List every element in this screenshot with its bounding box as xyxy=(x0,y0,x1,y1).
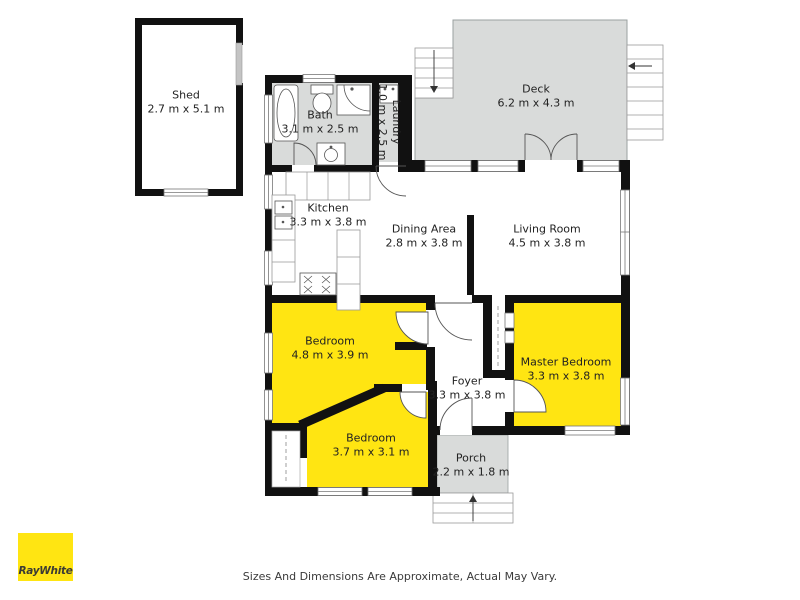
porch-stairs xyxy=(433,493,513,523)
shed-door xyxy=(236,43,242,85)
kitchen-peninsula xyxy=(337,230,360,310)
stove xyxy=(300,273,336,295)
raywhite-logo-text: RayWhite xyxy=(18,565,73,577)
room-name: Deck xyxy=(498,82,575,96)
room-name: Laundry xyxy=(389,84,403,161)
window xyxy=(425,161,471,172)
room-label-master-bedroom: Master Bedroom 3.3 m x 3.8 m xyxy=(521,355,612,383)
window xyxy=(368,488,412,496)
door-front-entry xyxy=(440,398,472,430)
room-name: Dining Area xyxy=(386,222,463,236)
room-dims: 2.2 m x 1.8 m xyxy=(433,465,510,479)
floorplan-page: Shed 2.7 m x 5.1 m Bath 3.1 m x 2.5 m La… xyxy=(0,0,800,600)
window xyxy=(303,75,335,83)
room-name: Shed xyxy=(148,88,225,102)
window xyxy=(478,161,518,172)
window xyxy=(265,251,273,285)
bathroom-sink xyxy=(317,143,345,165)
window xyxy=(621,190,630,275)
window xyxy=(565,426,615,435)
room-label-kitchen: Kitchen 3.3 m x 3.8 m xyxy=(290,201,367,229)
window xyxy=(265,333,273,373)
room-label-bedroom-1: Bedroom 4.8 m x 3.9 m xyxy=(292,334,369,362)
room-dims: 3.7 m x 3.1 m xyxy=(333,445,410,459)
shed-window xyxy=(164,189,208,196)
disclaimer-text: Sizes And Dimensions Are Approximate, Ac… xyxy=(0,570,800,583)
room-name: Porch xyxy=(433,451,510,465)
room-dims: 2.7 m x 5.1 m xyxy=(148,102,225,116)
window xyxy=(265,95,273,143)
room-label-shed: Shed 2.7 m x 5.1 m xyxy=(148,88,225,116)
room-label-laundry: Laundry 1.0 m x 2.5 m xyxy=(375,84,403,161)
deck-stairs-left xyxy=(415,48,453,98)
wardrobe-opening xyxy=(505,331,514,343)
deck-stairs-right xyxy=(627,45,663,140)
room-dims: 4.5 m x 3.8 m xyxy=(509,236,586,250)
room-label-living-room: Living Room 4.5 m x 3.8 m xyxy=(509,222,586,250)
window xyxy=(318,488,362,496)
room-dims: 3.3 m x 3.8 m xyxy=(521,369,612,383)
window xyxy=(583,161,619,172)
room-label-bedroom-2: Bedroom 3.7 m x 3.1 m xyxy=(333,431,410,459)
room-label-bath: Bath 3.1 m x 2.5 m xyxy=(282,108,359,136)
wardrobe-opening xyxy=(505,313,514,328)
raywhite-logo: RayWhite xyxy=(18,533,73,581)
room-dims: 3.3 m x 3.8 m xyxy=(429,388,506,402)
room-dims: 2.8 m x 3.8 m xyxy=(386,236,463,250)
room-dims: 3.3 m x 3.8 m xyxy=(290,215,367,229)
room-dims: 6.2 m x 4.3 m xyxy=(498,96,575,110)
room-label-dining-area: Dining Area 2.8 m x 3.8 m xyxy=(386,222,463,250)
room-name: Living Room xyxy=(509,222,586,236)
kitchen-fixtures xyxy=(272,172,370,310)
room-dims: 1.0 m x 2.5 m xyxy=(375,84,389,161)
window xyxy=(265,175,273,209)
room-label-foyer: Foyer 3.3 m x 3.8 m xyxy=(429,374,506,402)
room-name: Bedroom xyxy=(292,334,369,348)
room-name: Bedroom xyxy=(333,431,410,445)
window xyxy=(265,390,273,420)
room-name: Foyer xyxy=(429,374,506,388)
room-label-deck: Deck 6.2 m x 4.3 m xyxy=(498,82,575,110)
room-name: Bath xyxy=(282,108,359,122)
room-dims: 4.8 m x 3.9 m xyxy=(292,348,369,362)
window xyxy=(621,378,630,425)
room-label-porch: Porch 2.2 m x 1.8 m xyxy=(433,451,510,479)
kitchen-counter-top xyxy=(286,172,370,200)
door-dining-foyer xyxy=(435,303,472,340)
room-name: Kitchen xyxy=(290,201,367,215)
room-dims: 3.1 m x 2.5 m xyxy=(282,122,359,136)
room-name: Master Bedroom xyxy=(521,355,612,369)
